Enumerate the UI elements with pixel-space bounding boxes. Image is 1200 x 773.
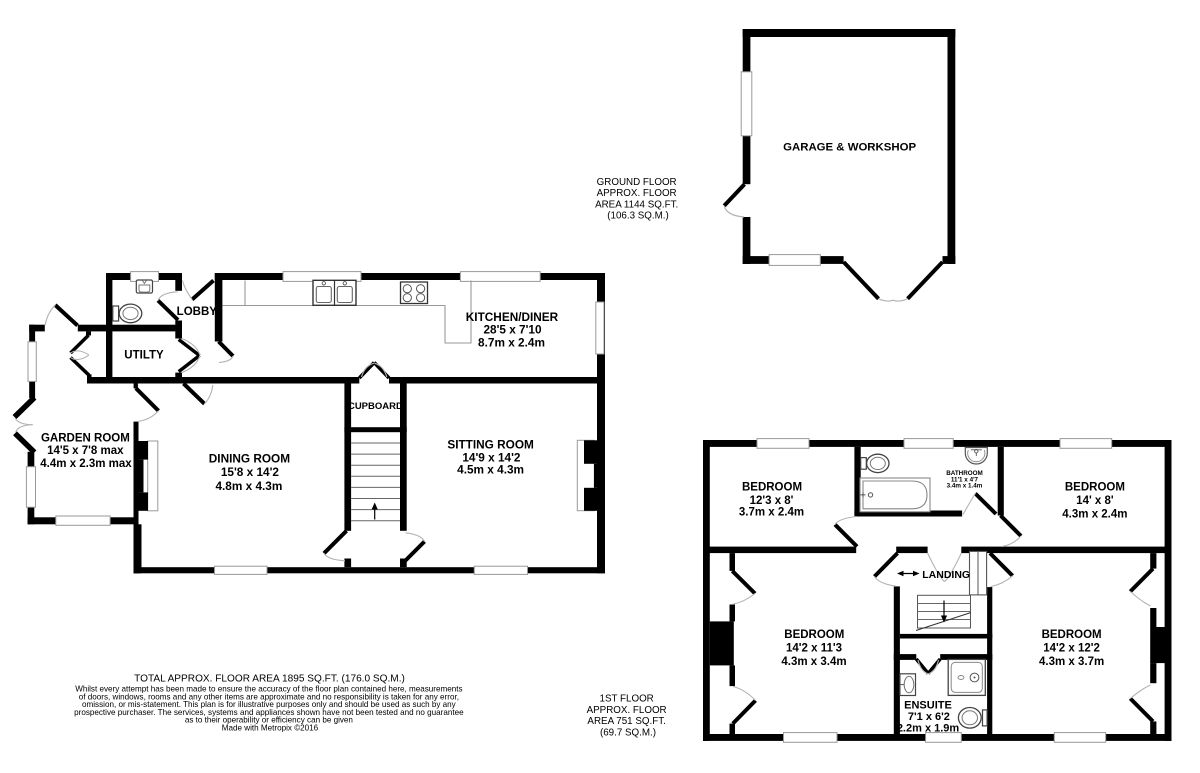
svg-text:GROUND FLOOR APPROX. FLOOR: GROUND FLOOR APPROX. FLOOR AREA 1144 SQ.… bbox=[595, 177, 681, 222]
svg-text:GARAGE & WORKSHOP: GARAGE & WORKSHOP bbox=[783, 142, 916, 154]
svg-text:4.3m x 2.4m: 4.3m x 2.4m bbox=[1062, 509, 1127, 521]
svg-text:4.3m x 3.4m: 4.3m x 3.4m bbox=[781, 656, 846, 668]
svg-text:15'8 x 14'2: 15'8 x 14'2 bbox=[221, 465, 280, 479]
svg-text:3.4m x 1.4m: 3.4m x 1.4m bbox=[947, 483, 983, 490]
svg-text:UTILTY: UTILTY bbox=[124, 350, 164, 362]
svg-text:4.8m x 4.3m: 4.8m x 4.3m bbox=[215, 479, 282, 493]
svg-text:3.7m x 2.4m: 3.7m x 2.4m bbox=[739, 507, 804, 519]
svg-text:8.7m x 2.4m: 8.7m x 2.4m bbox=[478, 336, 545, 350]
svg-text:14' x 8': 14' x 8' bbox=[1076, 495, 1114, 507]
svg-text:LOBBY: LOBBY bbox=[177, 306, 218, 318]
svg-text:BEDROOM: BEDROOM bbox=[784, 629, 844, 641]
svg-text:BEDROOM: BEDROOM bbox=[1042, 629, 1102, 641]
svg-text:DINING ROOM: DINING ROOM bbox=[209, 452, 290, 466]
svg-text:4.3m x 3.7m: 4.3m x 3.7m bbox=[1039, 656, 1104, 668]
svg-text:ENSUITE: ENSUITE bbox=[904, 700, 952, 712]
svg-text:14'2 x 12'2: 14'2 x 12'2 bbox=[1043, 643, 1100, 655]
svg-text:28'5 x 7'10: 28'5 x 7'10 bbox=[483, 323, 542, 337]
svg-text:GARDEN ROOM: GARDEN ROOM bbox=[41, 433, 130, 445]
svg-text:LANDING: LANDING bbox=[922, 569, 970, 581]
svg-text:4.5m x 4.3m: 4.5m x 4.3m bbox=[457, 463, 524, 477]
svg-text:7'1 x 6'2: 7'1 x 6'2 bbox=[908, 711, 950, 723]
svg-text:SITTING ROOM: SITTING ROOM bbox=[447, 438, 534, 452]
svg-text:BEDROOM: BEDROOM bbox=[1065, 482, 1125, 494]
svg-text:BEDROOM: BEDROOM bbox=[742, 482, 802, 494]
svg-text:TOTAL APPROX. FLOOR AREA 1895: TOTAL APPROX. FLOOR AREA 1895 SQ.FT. (17… bbox=[134, 674, 405, 685]
svg-text:12'3 x 8': 12'3 x 8' bbox=[750, 495, 794, 507]
svg-text:2.2m x 1.9m: 2.2m x 1.9m bbox=[897, 722, 960, 734]
svg-text:4.4m x 2.3m max: 4.4m x 2.3m max bbox=[40, 458, 132, 470]
svg-text:14'5 x 7'8 max: 14'5 x 7'8 max bbox=[47, 445, 124, 457]
svg-text:14'2 x 11'3: 14'2 x 11'3 bbox=[786, 643, 842, 655]
svg-text:CUPBOARD: CUPBOARD bbox=[348, 401, 403, 412]
